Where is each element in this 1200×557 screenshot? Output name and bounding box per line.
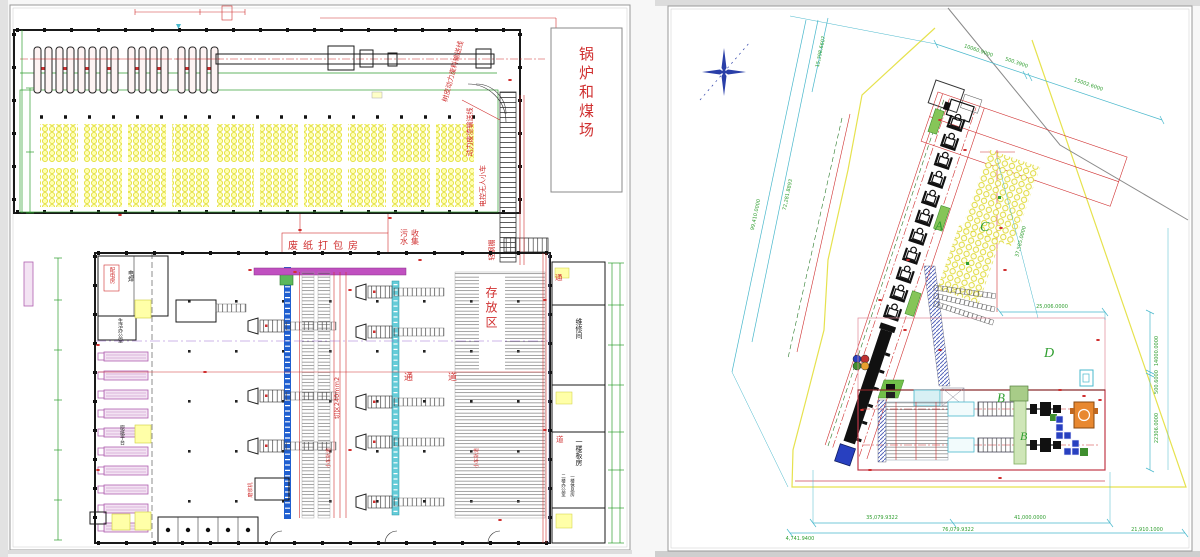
area-b2-label: B [1020,429,1028,443]
corridor-char-2: 道 [448,371,457,383]
paper-platform-label: 原纸平台 [119,425,125,446]
dim-right-2: 500.6000 [1154,370,1160,394]
left-floor-plan-sheet: 锅炉和煤场 树皮动力废料输送线 动力废渣输送线 电控无人小车 轻钢棚 废纸打包房… [0,0,632,557]
right-site-plan-sheet: 99,410.0000 72,281.8893 15,398.6607 1006… [655,0,1200,557]
left-paper-shadow [8,550,632,554]
dryer-machine [1070,402,1098,428]
dim-bottom-2: 41,000.0000 [1014,515,1046,521]
corridor2-char-2: 道 [556,434,564,444]
cart-track-label-1: 小车轨道 [325,448,332,468]
corridor-char-1: 通 [404,372,413,383]
scan-edge-bottom [655,551,1200,557]
storage-area-label: 存放区 [484,286,498,331]
scan-edge-top [655,0,1200,6]
sewage-label-2: 收集 [411,228,420,246]
gate-box [1080,370,1093,386]
unmanned-cart-label: 电控无人小车 [478,165,487,207]
office-2f-label: 二楼办公室 [561,474,566,497]
boiler-coal-yard-label: 锅炉和煤场 [577,46,595,141]
cad-canvas: 锅炉和煤场 树皮动力废料输送线 动力废渣输送线 电控无人小车 轻钢棚 废纸打包房… [0,0,1200,557]
steel-shed-label: 轻钢棚 [487,240,496,261]
rest-room-label: 一楼休息房 [570,474,575,498]
repair-room-label: 维修间 [575,317,583,340]
dim-d-label: 25,006.0000 [1036,304,1068,310]
waste-paper-packing-label: 废纸打包房 [288,239,363,252]
cart-track-label-2: 小车轨道 [473,448,480,468]
area-b-label: B [997,390,1005,405]
corridor2-char-1: 通 [555,272,563,282]
dim-bottom-4: 4,741.9400 [786,536,815,542]
rack-block [886,402,948,460]
welding-label: 电焊 [127,269,134,283]
bunk-room-label: 一楼板房 [575,438,583,467]
dim-right-1: 14000.0000 [1154,336,1160,366]
boiler-coal-yard: 锅炉和煤场 [551,28,622,192]
area-d-label: D [1043,346,1054,361]
pillar-shaft [24,262,33,306]
hopper-1 [886,384,895,390]
distribution-room-label: 配电房 [109,267,116,285]
scan-edge-left [0,0,8,557]
dim-bottom-1: 35,079.9322 [866,515,898,521]
office-label: 生活办公室 [117,317,123,343]
slag-conveyor-label: 动力废渣输送线 [465,108,474,157]
refiner-label: 磨浆机 [247,482,254,497]
area-a-label: A [934,218,943,233]
bottom-workshop: 配电房 电焊 生活办公室 原纸平台 [90,253,605,543]
screenshot-root: 锅炉和煤场 树皮动力废料输送线 动力废渣输送线 电控无人小车 轻钢棚 废纸打包房… [0,0,1200,557]
hopper-2 [886,392,895,398]
dim-bottom-3: 76,079.9322 [942,527,974,533]
dim-bottom-5: 21,910.1000 [1131,527,1163,533]
sewage-label-1: 污水 [400,228,409,245]
dim-right-3: 22306.0000 [1154,413,1160,443]
cut-area-label: 切区240mm2 [333,377,341,419]
area-c-label: C [980,220,990,235]
